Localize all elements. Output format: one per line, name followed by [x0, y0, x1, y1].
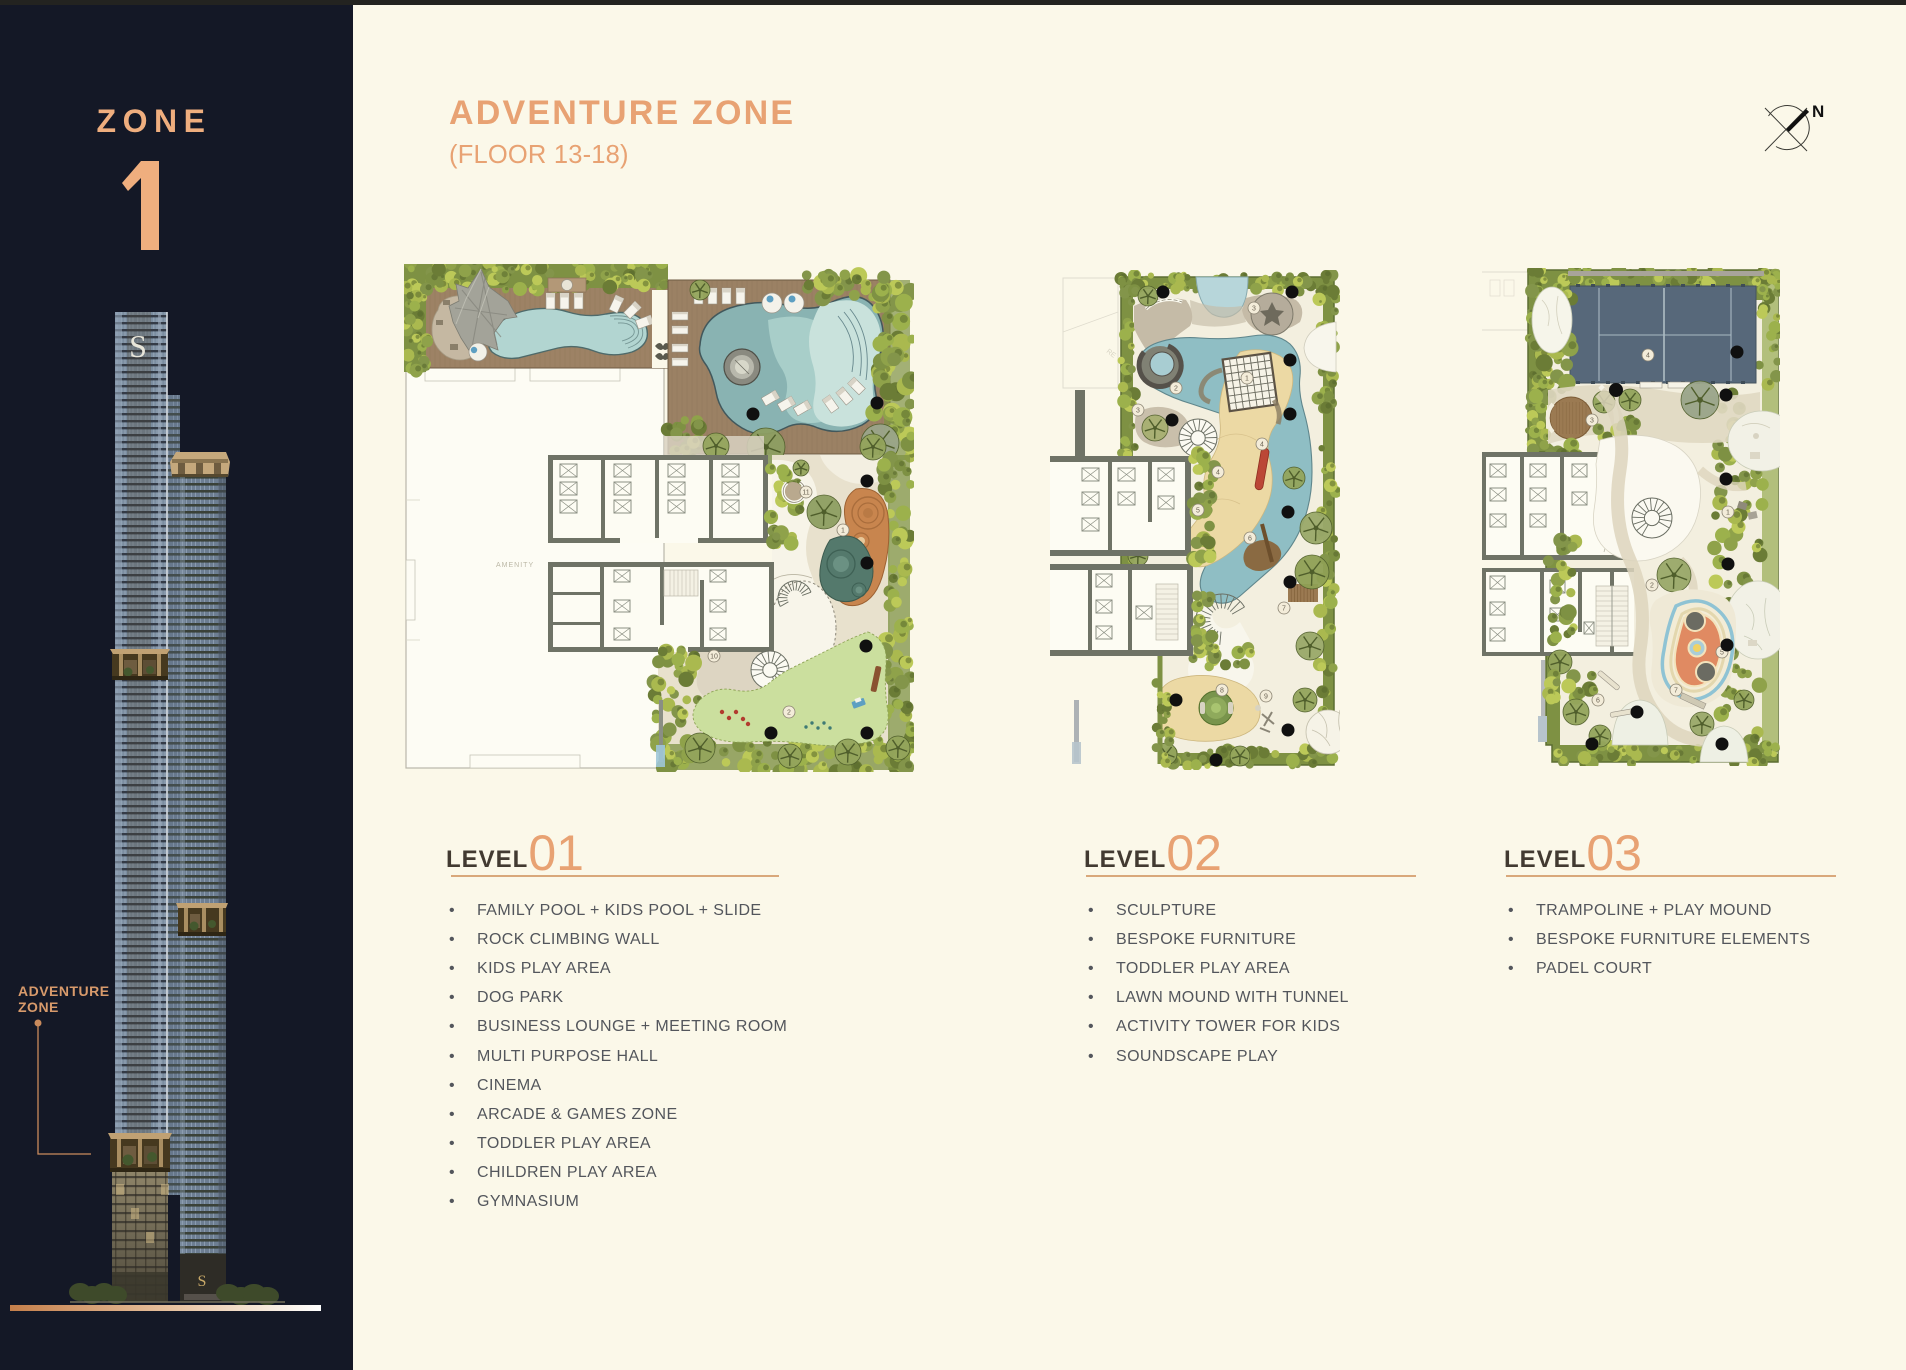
svg-text:AMENITY: AMENITY: [496, 562, 534, 569]
svg-text:2: 2: [1174, 385, 1178, 392]
svg-text:2: 2: [787, 709, 791, 716]
svg-text:1: 1: [1726, 509, 1730, 516]
svg-text:6: 6: [1596, 697, 1600, 704]
svg-text:RE: RE: [1105, 348, 1117, 360]
svg-text:4: 4: [1646, 352, 1650, 359]
svg-text:3: 3: [1252, 305, 1256, 312]
svg-text:7: 7: [1674, 687, 1678, 694]
svg-text:S: S: [198, 1273, 207, 1290]
svg-text:7: 7: [1282, 605, 1286, 612]
svg-text:S: S: [129, 328, 147, 364]
svg-text:1: 1: [1245, 375, 1249, 382]
svg-text:4: 4: [1260, 441, 1264, 448]
svg-text:N: N: [1812, 102, 1824, 121]
svg-text:1: 1: [841, 527, 845, 534]
svg-text:11: 11: [802, 489, 809, 496]
svg-text:3: 3: [1590, 417, 1594, 424]
svg-text:3: 3: [1136, 407, 1140, 414]
svg-text:6: 6: [1248, 535, 1252, 542]
svg-text:9: 9: [1264, 693, 1268, 700]
svg-text:5: 5: [1720, 649, 1724, 656]
svg-text:2: 2: [1650, 582, 1654, 589]
svg-text:4: 4: [1216, 469, 1220, 476]
svg-text:10: 10: [710, 653, 718, 660]
svg-text:8: 8: [1220, 687, 1224, 694]
svg-text:5: 5: [1196, 507, 1200, 514]
